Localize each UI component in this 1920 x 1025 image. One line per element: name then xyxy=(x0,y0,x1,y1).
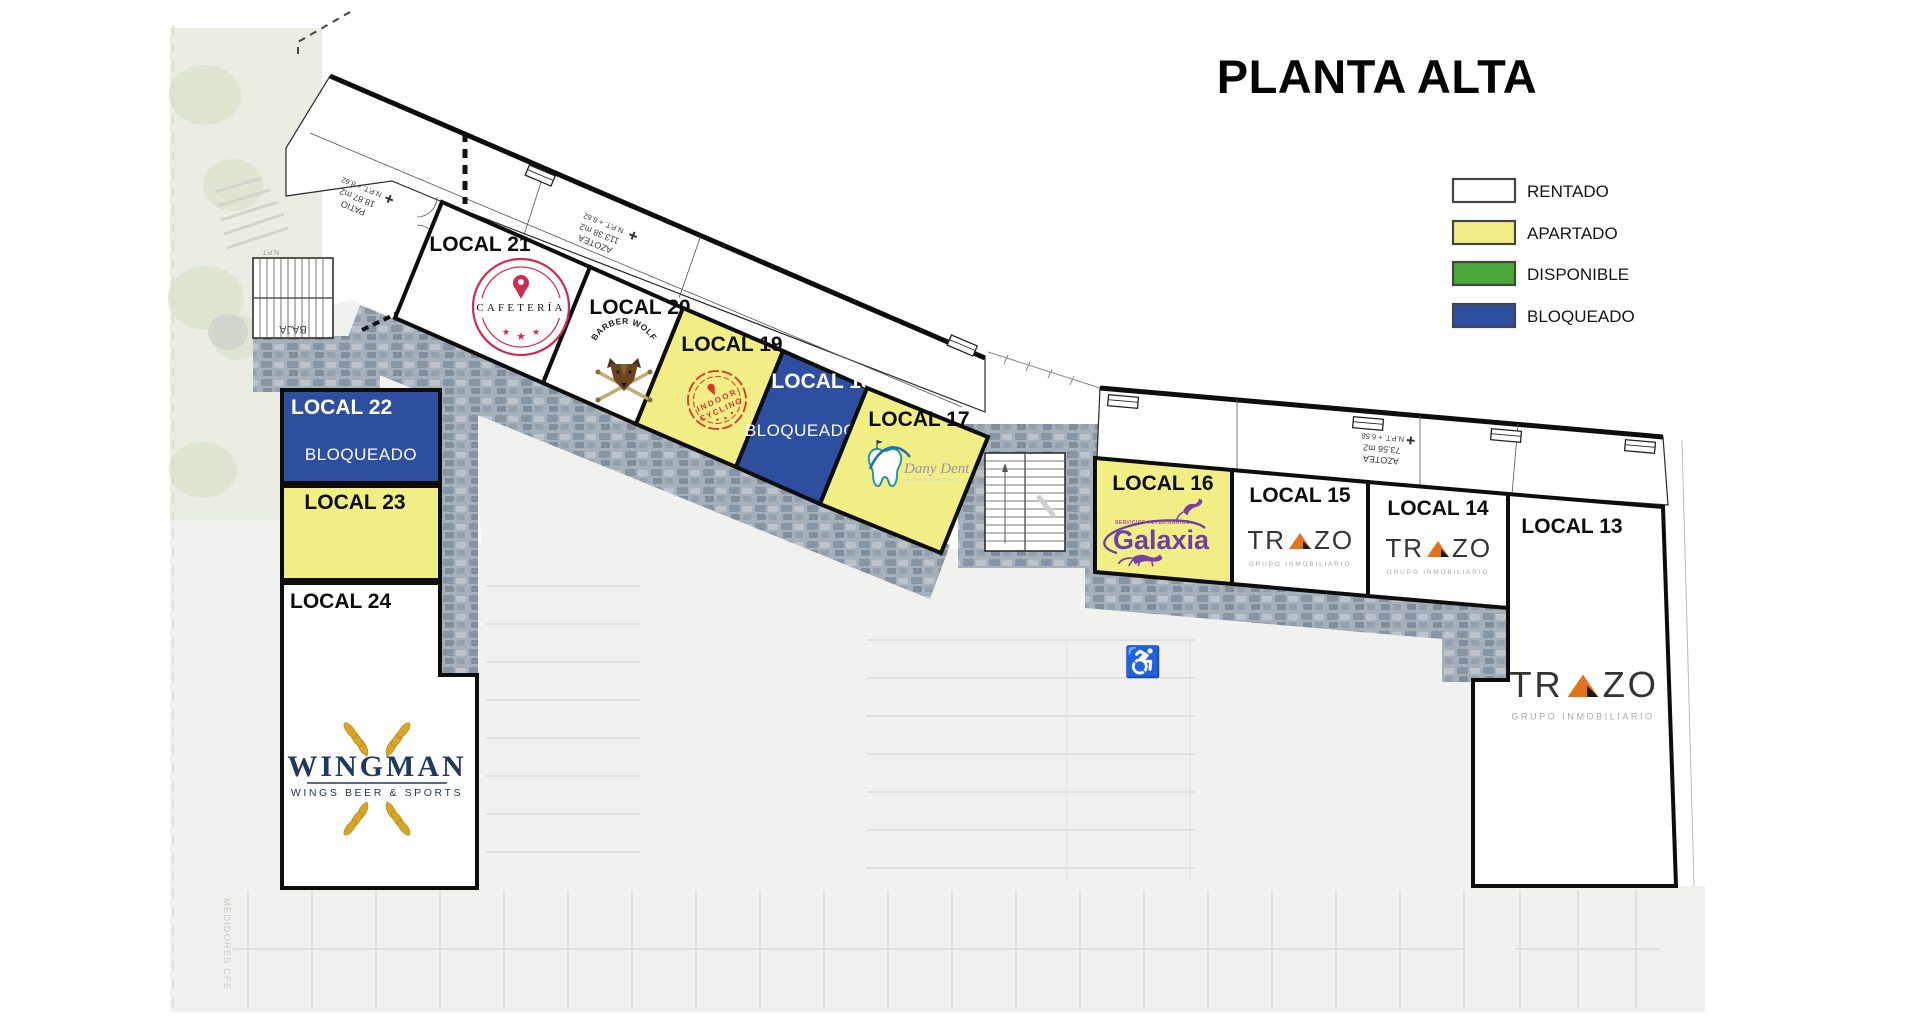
legend-item-rentado: RENTADO xyxy=(1453,179,1609,202)
local-20-label: LOCAL 20 xyxy=(589,296,690,319)
local-17-label: LOCAL 17 xyxy=(868,408,969,431)
legend-label: APARTADO xyxy=(1527,224,1618,243)
meters-label: MEDIDORES CFE xyxy=(221,898,232,990)
legend-swatch xyxy=(1453,262,1515,285)
svg-text:ZO: ZO xyxy=(1603,664,1659,705)
local-18-status: BLOQUEADO xyxy=(745,421,857,440)
legend-item-disponible: DISPONIBLE xyxy=(1453,262,1629,285)
local-18-label: LOCAL 18 xyxy=(771,370,872,393)
trazo-tagline: GRUPO INMOBILIARIO xyxy=(1249,561,1351,568)
door-symbol xyxy=(1108,395,1139,409)
svg-text:GRUPO INMOBILIARIO: GRUPO INMOBILIARIO xyxy=(1511,711,1654,721)
star-icon: ★ xyxy=(502,327,510,337)
local-24-label: LOCAL 24 xyxy=(290,590,391,613)
legend-label: BLOQUEADO xyxy=(1527,307,1635,326)
trazo-text-tr: TR xyxy=(1247,525,1286,555)
outer-wall-line xyxy=(1682,440,1694,886)
local-22-unit: LOCAL 22 BLOQUEADO xyxy=(282,390,440,483)
local-22-label: LOCAL 22 xyxy=(291,396,392,419)
wingman-text: WINGMAN xyxy=(287,750,466,783)
svg-text:TR: TR xyxy=(1385,533,1424,563)
stairs-middle xyxy=(985,453,1065,551)
npt-label: N.P.T. xyxy=(261,248,279,255)
star-icon: ★ xyxy=(532,327,540,337)
north-indicator-icon xyxy=(384,194,394,204)
tree xyxy=(169,442,237,498)
star-icon: ★ xyxy=(516,331,526,343)
door-swing-arc xyxy=(417,197,437,217)
local-13-label: LOCAL 13 xyxy=(1521,515,1622,538)
svg-text:GRUPO INMOBILIARIO: GRUPO INMOBILIARIO xyxy=(1387,569,1489,576)
trazo-text-zo: ZO xyxy=(1314,525,1354,555)
wheelchair-icon: ♿ xyxy=(1124,644,1161,679)
legend-label: DISPONIBLE xyxy=(1527,265,1629,284)
legend-swatch xyxy=(1453,221,1515,244)
local-15-label: LOCAL 15 xyxy=(1249,484,1350,507)
site-survey-line xyxy=(988,352,1100,388)
local-21-label: LOCAL 21 xyxy=(429,233,530,256)
wingman-tagline: WINGS BEER & SPORTS xyxy=(291,787,463,799)
local-23-unit: LOCAL 23 xyxy=(282,486,440,580)
legend-swatch xyxy=(1453,304,1515,327)
legend-item-apartado: APARTADO xyxy=(1453,221,1618,244)
door-symbol xyxy=(1353,417,1384,431)
page-title: PLANTA ALTA xyxy=(1217,50,1538,103)
tree xyxy=(169,65,241,125)
local-22-status: BLOQUEADO xyxy=(305,445,417,464)
legend-label: RENTADO xyxy=(1527,182,1609,201)
local-14-label: LOCAL 14 xyxy=(1387,497,1488,520)
galaxia-text: Galaxia xyxy=(1113,525,1210,555)
local-23-label: LOCAL 23 xyxy=(304,491,405,514)
tree xyxy=(208,314,248,350)
legend: RENTADO APARTADO DISPONIBLE BLOQUEADO xyxy=(1453,179,1635,327)
svg-text:ZO: ZO xyxy=(1452,533,1492,563)
local-16-label: LOCAL 16 xyxy=(1112,472,1213,495)
svg-text:TR: TR xyxy=(1509,664,1563,705)
floorplan-canvas: ♿ ♿ MEDIDORES CFE PATIO 18.87 m2 N.P.T. xyxy=(0,0,1920,1025)
legend-swatch xyxy=(1453,179,1515,202)
door-symbol xyxy=(1625,440,1656,454)
door-symbol xyxy=(1491,429,1522,443)
tree xyxy=(203,159,263,211)
cafeteria-logo-text: CAFETERÍA xyxy=(476,302,565,314)
legend-item-bloqueado: BLOQUEADO xyxy=(1453,304,1635,327)
dany-dent-text: Dany Dent xyxy=(903,461,970,477)
local-19-label: LOCAL 19 xyxy=(681,333,782,356)
stairs-direction-label: BAJA xyxy=(279,323,307,335)
